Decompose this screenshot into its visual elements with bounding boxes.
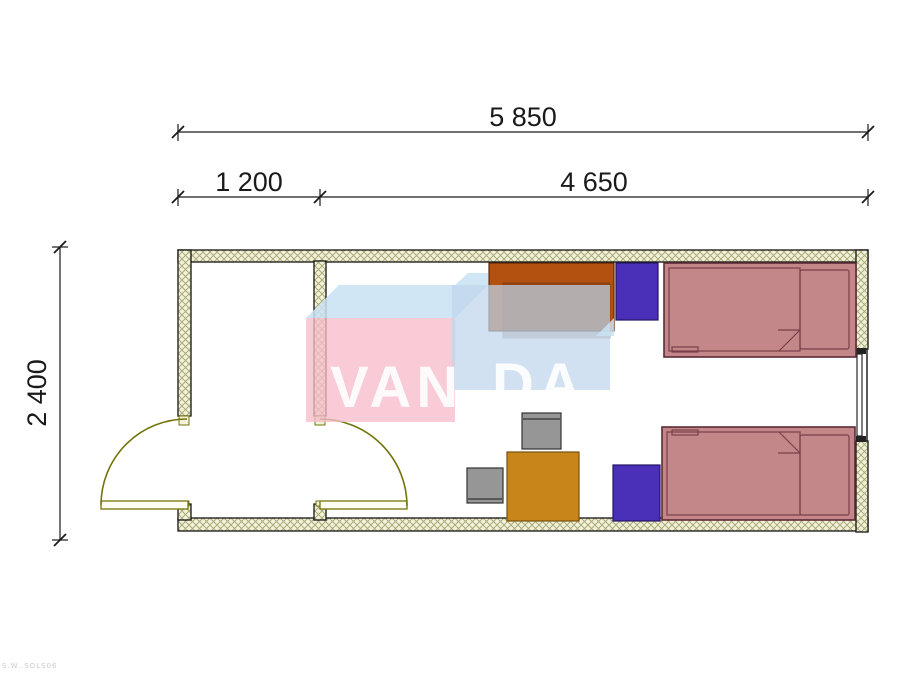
chair-left (467, 468, 503, 503)
entrance-door-jamb (179, 416, 189, 425)
dim-label-overall: 5 850 (489, 102, 557, 132)
table (507, 452, 579, 521)
interior-door-arc (320, 419, 407, 506)
entrance-door-arc (101, 419, 187, 505)
nightstand-top (616, 263, 658, 320)
floor-plan-drawing: VAN DA 5 850 1 200 4 650 2 400 (0, 0, 924, 700)
bed-bottom-frame (662, 427, 855, 520)
dimension-depth: 2 400 (22, 241, 68, 546)
bed-top-frame (664, 263, 856, 357)
dimension-segments: 1 200 4 650 (172, 167, 874, 206)
corner-note: S.W..SOLS06 (2, 662, 57, 670)
dimension-overall-width: 5 850 (172, 102, 874, 141)
entrance-door-leaf (101, 501, 188, 509)
dim-label-depth: 2 400 (22, 359, 52, 427)
interior-door-leaf (320, 501, 407, 509)
chair-left-seat (467, 468, 503, 503)
watermark-text-left: VAN (330, 355, 463, 420)
right-wall-upper (856, 250, 868, 349)
watermark-text-right: DA (492, 352, 586, 417)
doors (101, 416, 407, 509)
floor-plan-canvas: VAN DA 5 850 1 200 4 650 2 400 S.W..SOLS… (0, 0, 924, 700)
watermark: VAN DA (306, 273, 614, 422)
window-jamb-bottom (856, 436, 866, 442)
window (856, 348, 867, 442)
bed-bottom (662, 427, 855, 520)
dim-label-main-room: 4 650 (560, 167, 628, 197)
watermark-top-sliver (455, 273, 488, 285)
dim-label-entry: 1 200 (215, 167, 283, 197)
right-wall-lower (856, 441, 868, 532)
window-sash (857, 354, 862, 436)
nightstand-bottom (613, 465, 660, 521)
bed-top (664, 263, 856, 357)
top-wall (178, 250, 868, 262)
window-jamb-top (856, 348, 866, 354)
chair-top (522, 413, 561, 449)
left-wall-upper (178, 250, 191, 416)
